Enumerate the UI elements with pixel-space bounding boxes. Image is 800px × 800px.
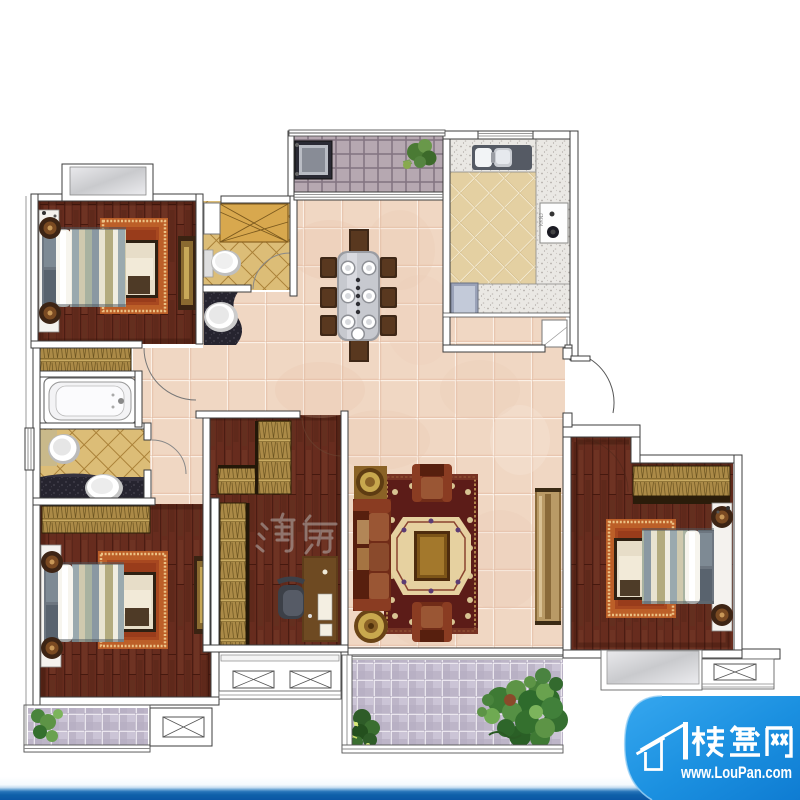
svg-text:www.LouPan.com: www.LouPan.com — [680, 764, 792, 782]
svg-text:KKNJ: KKNJ — [539, 213, 545, 226]
